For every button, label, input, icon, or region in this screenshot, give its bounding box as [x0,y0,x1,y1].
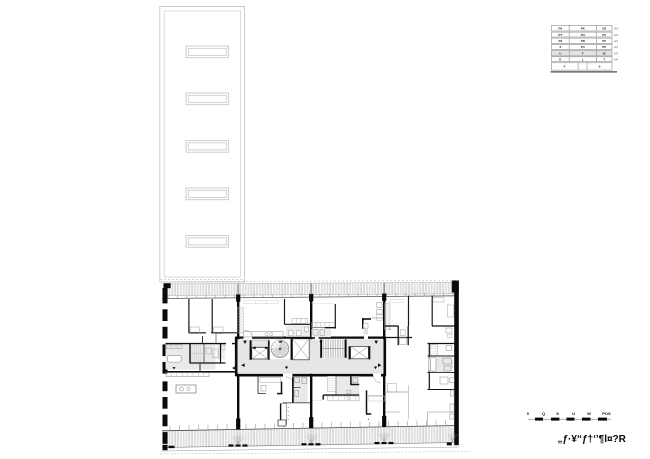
svg-text:+04: +04 [614,57,619,61]
svg-text:P3: P3 [581,45,585,49]
svg-text:+16: +16 [614,33,619,37]
svg-text:P3: P3 [559,39,563,43]
svg-text:Q: Q [542,411,545,416]
svg-text:P6: P6 [559,26,563,30]
svg-text:PU: PU [581,33,585,37]
svg-text:S: S [556,411,559,416]
svg-text:X: X [559,45,561,49]
svg-text:„ƒ·¥“ƒ†‘’¶l¤?R: „ƒ·¥“ƒ†‘’¶l¤?R [558,434,627,445]
svg-text:POS: POS [602,411,611,416]
svg-text:F: F [564,65,566,69]
svg-text:+07: +07 [614,52,619,56]
svg-text:PT: PT [558,33,562,37]
svg-text:S: S [598,65,600,69]
svg-text:PV: PV [602,33,606,37]
svg-text:+19: +19 [614,26,619,30]
svg-text:W: W [603,52,606,56]
svg-text:+10: +10 [614,45,619,49]
svg-text:T: T [603,57,605,61]
svg-text:F: F [582,52,584,56]
svg-text:L: L [582,57,584,61]
svg-text:U: U [559,52,561,56]
svg-text:PP: PP [602,45,606,49]
svg-text:P5: P5 [602,39,606,43]
svg-text:G8: G8 [602,26,606,30]
svg-text:U: U [572,411,575,416]
svg-text:+13: +13 [614,39,619,43]
svg-text:W: W [587,411,591,416]
